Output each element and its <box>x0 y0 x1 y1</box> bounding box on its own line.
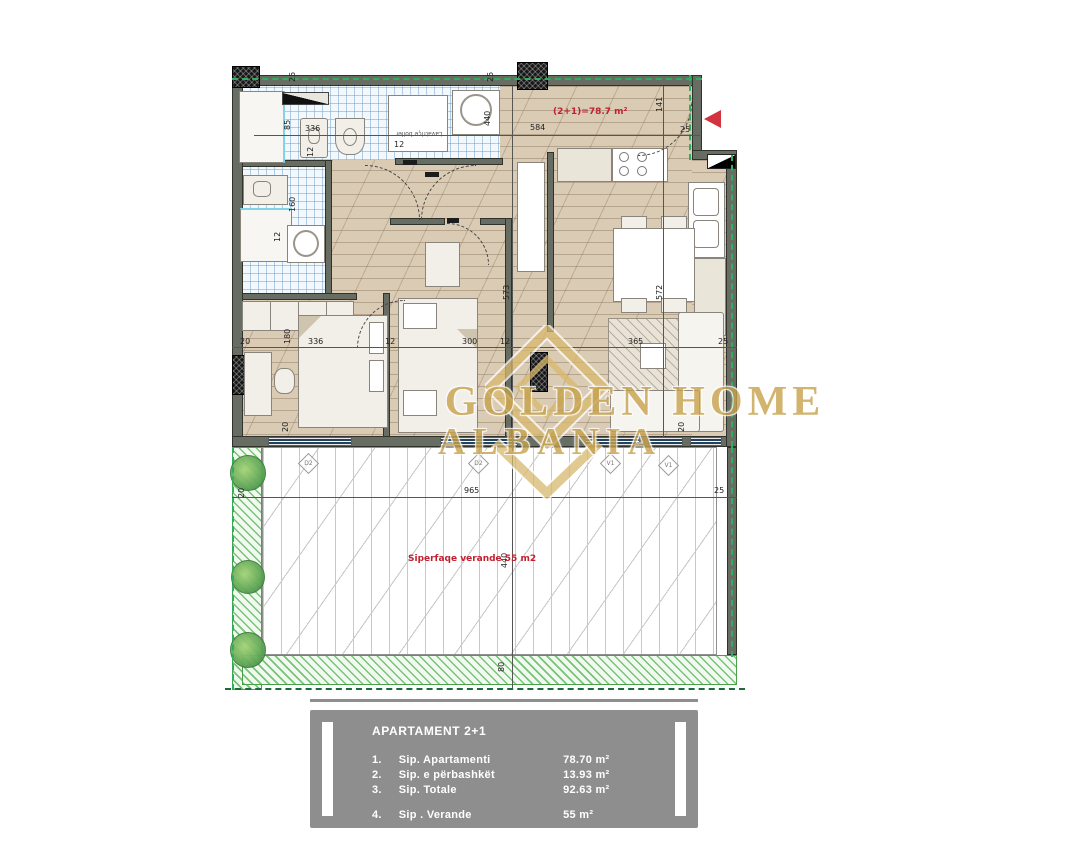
dim-label: 25 <box>714 487 724 495</box>
tree-icon <box>230 632 266 668</box>
row-label: Sip. e përbashkët <box>399 769 563 784</box>
row-label: Sip . Verande <box>399 809 563 824</box>
table-left-bar <box>322 722 333 816</box>
sink-2-bowl <box>253 181 271 197</box>
dim-label: 336 <box>308 338 323 346</box>
dim-label: 20 <box>238 488 246 498</box>
dim-label: 25 <box>718 338 728 346</box>
dim-label: 160 <box>289 197 297 212</box>
dim-line-top <box>254 135 700 136</box>
table-row: 3. Sip. Totale 92.63 m² <box>372 784 672 799</box>
table-row: 2. Sip. e përbashkët 13.93 m² <box>372 769 672 784</box>
partition-bedroom1-north <box>242 293 357 300</box>
row-value: 78.70 m² <box>563 754 672 769</box>
pillow <box>369 360 384 392</box>
table-row: 4. Sip . Verande 55 m² <box>372 809 672 824</box>
tree-icon <box>231 560 265 594</box>
desk-bedroom1 <box>244 352 272 416</box>
door-leaf <box>425 172 439 177</box>
row-number: 3. <box>372 784 399 799</box>
dim-label: 180 <box>284 329 292 344</box>
pillow <box>403 303 437 329</box>
watermark-line1: GOLDEN HOME <box>415 378 855 426</box>
dim-label: 25 <box>487 72 495 82</box>
row-value: 13.93 m² <box>563 769 672 784</box>
info-table: APARTAMENT 2+1 1. Sip. Apartamenti 78.70… <box>310 710 698 828</box>
shower-tray-2 <box>240 208 292 262</box>
dim-label: 300 <box>462 338 477 346</box>
dim-label: 12 <box>394 141 404 149</box>
dim-label: 584 <box>530 124 545 132</box>
info-table-top-rule <box>310 699 698 702</box>
planter-strip-bottom <box>242 655 737 685</box>
desk-chair <box>274 368 295 394</box>
dining-table <box>613 228 695 302</box>
dim-label: 12 <box>307 147 315 157</box>
sink-bowl-a <box>693 188 719 216</box>
dim-label: 25 <box>680 126 690 134</box>
column-corner-topleft <box>232 66 260 88</box>
dim-label: 20 <box>282 422 290 432</box>
burner <box>619 166 629 176</box>
burner <box>637 166 647 176</box>
door-leaf <box>403 160 417 165</box>
floorplan-canvas: Lavatriçe boiler <box>0 0 1092 842</box>
row-number: 4. <box>372 809 399 824</box>
row-label: Sip. Totale <box>399 784 563 799</box>
shower-tray-1 <box>239 91 285 163</box>
row-number: 1. <box>372 754 399 769</box>
kitchen-counter-top <box>557 148 612 182</box>
apartment-area-label: (2+1)=78.7 m² <box>553 108 628 117</box>
table-row: 1. Sip. Apartamenti 78.70 m² <box>372 754 672 769</box>
wall-entry-stub <box>692 75 702 155</box>
table-right-bar <box>675 722 686 816</box>
toilet-2-bowl <box>293 230 319 257</box>
info-table-title: APARTAMENT 2+1 <box>372 724 486 738</box>
dim-label: 965 <box>464 487 479 495</box>
entrance-arrow-icon <box>704 110 721 128</box>
partition-corridor-east <box>547 152 554 332</box>
window-d2-a <box>268 437 352 446</box>
tree-icon <box>230 455 266 491</box>
dim-label: 440 <box>484 111 492 126</box>
dim-label: 573 <box>503 285 511 300</box>
dim-label: 12 <box>385 338 395 346</box>
dim-label: 85 <box>284 120 292 130</box>
row-label: Sip. Apartamenti <box>399 754 563 769</box>
dim-label: 572 <box>656 285 664 300</box>
sink-bowl-b <box>693 220 719 248</box>
wall-top <box>232 75 702 86</box>
dim-label: 80 <box>498 662 506 672</box>
boundary-line-veranda-right <box>731 447 733 657</box>
shelf-wedge <box>282 92 329 105</box>
dim-label: 20 <box>240 338 250 346</box>
boundary-line-veranda-left <box>232 447 234 690</box>
dining-chair <box>621 298 647 313</box>
dim-label: 25 <box>289 72 297 82</box>
wardrobe-corridor <box>517 162 545 272</box>
row-value: 55 m² <box>563 809 672 824</box>
dim-label: 141 <box>656 97 664 112</box>
row-number: 2. <box>372 769 399 784</box>
boundary-line-bottom <box>225 688 745 690</box>
dining-chair <box>661 298 687 313</box>
door-leaf <box>447 218 459 223</box>
burner <box>619 152 629 162</box>
row-value: 92.63 m² <box>563 784 672 799</box>
dim-label: 336 <box>305 125 320 133</box>
boundary-line-entry <box>689 75 691 160</box>
watermark-line2: ALBANIA <box>405 420 695 464</box>
dim-label: 12 <box>274 232 282 242</box>
boundary-line-top <box>232 78 702 80</box>
dim-label: 365 <box>628 338 643 346</box>
toilet-1-bowl <box>343 128 357 146</box>
window-tag-label: D2 <box>302 460 315 467</box>
column-chimney-top <box>517 62 548 90</box>
bed-fold <box>299 316 321 338</box>
partition-bath2-east <box>325 160 332 300</box>
veranda-area-label: Siperfaqe verande 55 m2 <box>408 555 536 564</box>
